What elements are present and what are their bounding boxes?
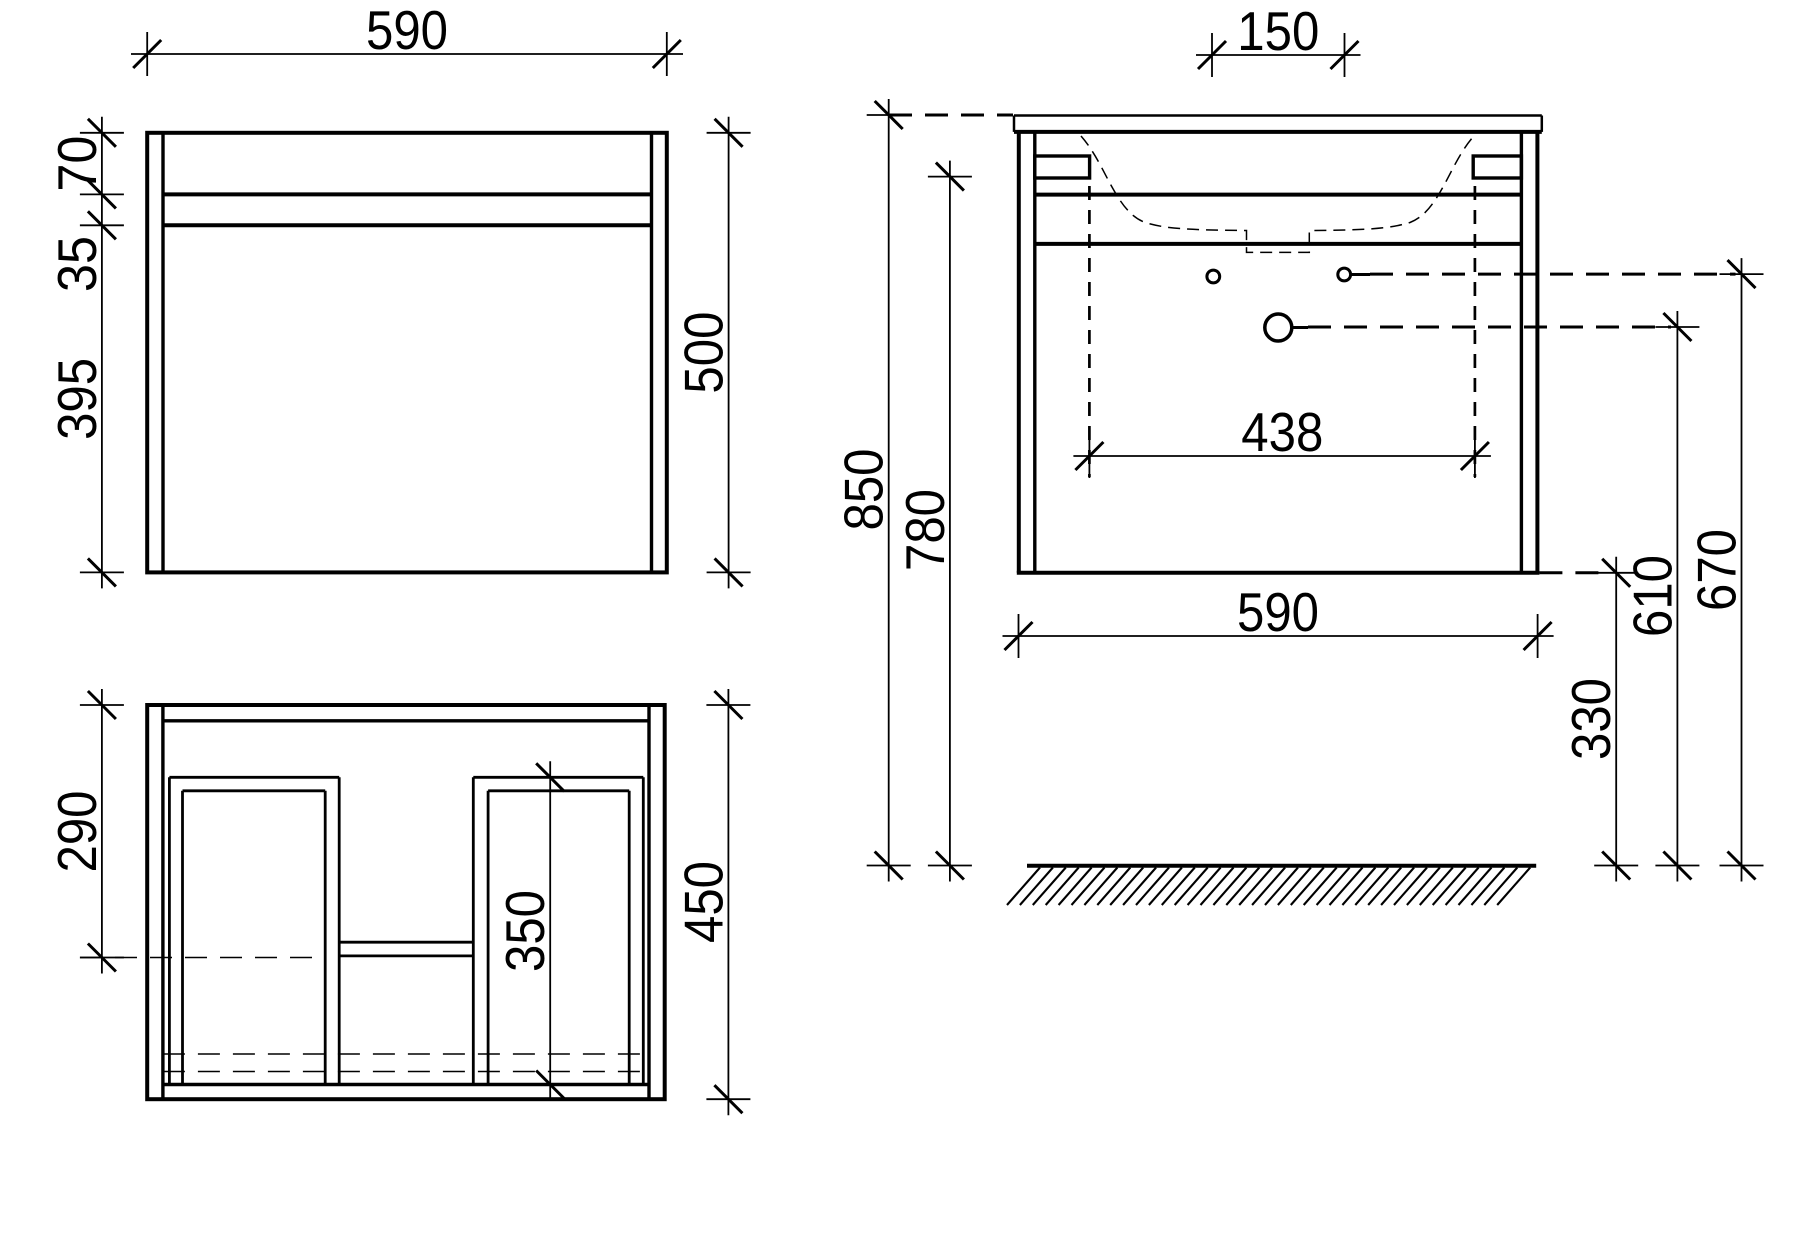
svg-text:590: 590 <box>366 0 448 61</box>
svg-text:70: 70 <box>47 136 108 192</box>
svg-text:395: 395 <box>47 358 108 440</box>
svg-text:850: 850 <box>834 449 895 531</box>
svg-text:438: 438 <box>1241 402 1323 463</box>
svg-text:350: 350 <box>495 890 556 972</box>
svg-text:35: 35 <box>47 236 108 292</box>
svg-text:290: 290 <box>47 791 108 873</box>
svg-text:330: 330 <box>1561 678 1622 760</box>
svg-text:450: 450 <box>673 861 734 943</box>
svg-text:500: 500 <box>674 312 735 394</box>
svg-text:670: 670 <box>1687 529 1748 611</box>
svg-text:150: 150 <box>1237 1 1319 62</box>
svg-text:590: 590 <box>1237 582 1319 643</box>
svg-text:780: 780 <box>895 489 956 571</box>
svg-text:610: 610 <box>1622 555 1683 637</box>
